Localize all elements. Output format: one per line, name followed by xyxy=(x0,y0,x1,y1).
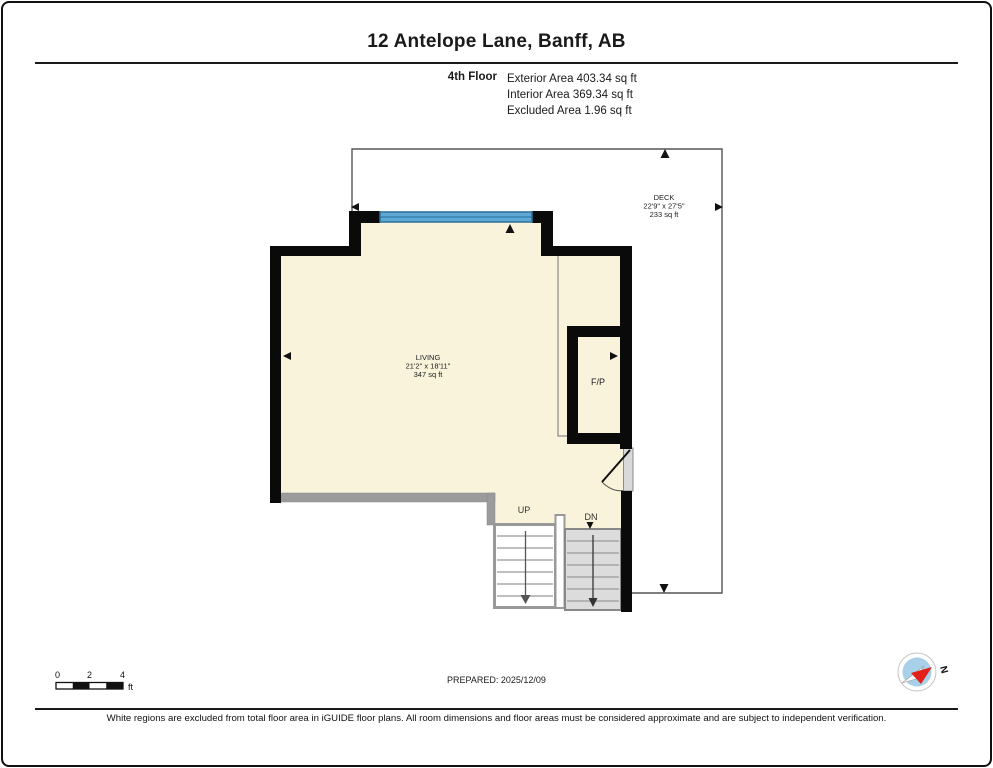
stairs-down-label: DN xyxy=(585,512,598,522)
prepared-date: PREPARED: 2025/12/09 xyxy=(0,675,993,685)
compass: N xyxy=(898,653,950,691)
wall-fireplace-left xyxy=(567,326,578,444)
floor-plan-page: 12 Antelope Lane, Banff, AB 4th Floor Ex… xyxy=(0,0,993,768)
fireplace-label: F/P xyxy=(591,377,605,387)
deck-arrow-down-icon xyxy=(660,584,669,593)
wall-upper-left-horiz xyxy=(270,246,361,256)
wall-right-lower xyxy=(621,491,632,612)
disclaimer-text: White regions are excluded from total fl… xyxy=(0,713,993,724)
railing-vertical xyxy=(487,493,495,525)
wall-upper-right-horiz xyxy=(541,246,632,256)
wall-fireplace-bottom xyxy=(567,433,621,444)
wall-fireplace-top xyxy=(567,326,621,337)
wall-right-upper xyxy=(620,246,632,449)
living-area: 347 sq ft xyxy=(414,370,444,379)
stairs-up xyxy=(495,525,556,608)
stairs-up-label: UP xyxy=(518,505,531,515)
floor-plan-svg: DECK 22'9" x 27'5" 233 sq ft LIVING 21'2… xyxy=(0,0,993,768)
compass-north-label: N xyxy=(937,665,949,675)
footer-divider xyxy=(35,708,958,710)
railing-horizontal xyxy=(278,493,495,502)
deck-area: 233 sq ft xyxy=(650,210,680,219)
stairs-down xyxy=(565,529,621,610)
wall-left xyxy=(270,246,281,503)
stair-divider-railing xyxy=(556,515,565,608)
railing-wall xyxy=(278,493,495,525)
deck-arrow-up-icon xyxy=(661,149,670,158)
window xyxy=(380,212,532,222)
